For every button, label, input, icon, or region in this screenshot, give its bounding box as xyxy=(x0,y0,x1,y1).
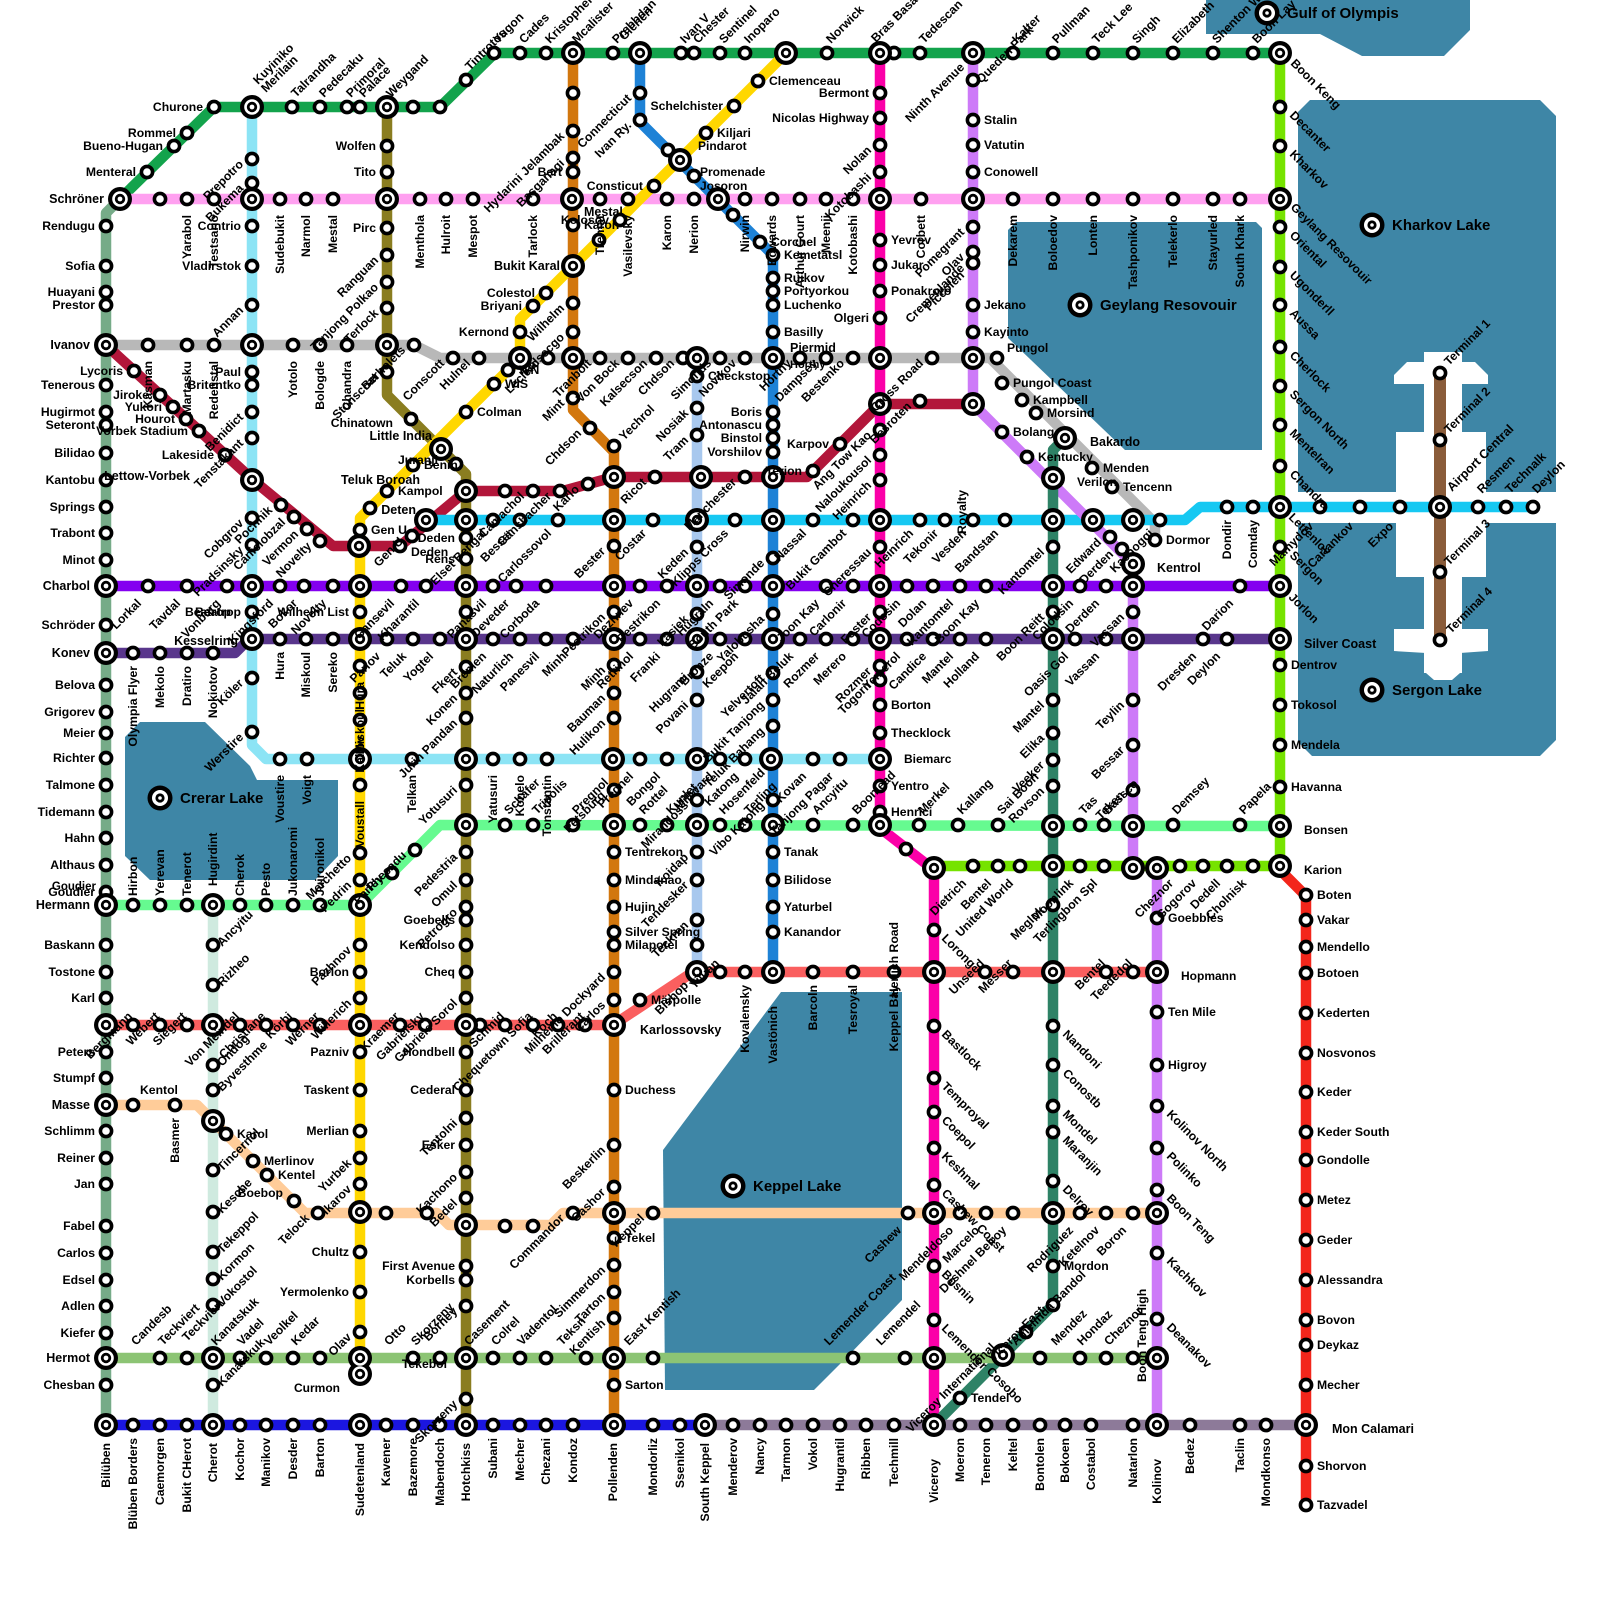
svg-text:Crerar Lake: Crerar Lake xyxy=(180,790,263,807)
svg-text:Nirwin: Nirwin xyxy=(738,215,752,252)
svg-text:Vorshilov: Vorshilov xyxy=(707,445,762,459)
svg-text:Huayani: Huayani xyxy=(48,285,95,299)
svg-text:Nicolas Highway: Nicolas Highway xyxy=(772,111,869,125)
svg-text:Miskoul: Miskoul xyxy=(299,652,313,697)
svg-text:Pungol: Pungol xyxy=(1007,341,1048,355)
svg-text:Richter: Richter xyxy=(53,751,95,765)
svg-text:Tito: Tito xyxy=(354,165,376,179)
svg-text:Mecher: Mecher xyxy=(1317,1378,1360,1392)
svg-text:Chandra: Chandra xyxy=(340,361,354,411)
svg-text:Gen U: Gen U xyxy=(371,523,407,537)
svg-text:Alessandra: Alessandra xyxy=(1317,1273,1383,1287)
svg-text:Pazniv: Pazniv xyxy=(310,1045,349,1059)
svg-text:Royalty: Royalty xyxy=(955,490,969,534)
svg-text:Menteral: Menteral xyxy=(86,165,136,179)
svg-text:Briyani: Briyani xyxy=(481,299,522,313)
svg-text:Goudier: Goudier xyxy=(52,881,97,893)
svg-text:Thecklock: Thecklock xyxy=(891,726,951,740)
svg-text:Teneron: Teneron xyxy=(979,1438,993,1485)
svg-text:Deden: Deden xyxy=(418,531,455,545)
svg-text:Kallov: Kallov xyxy=(353,736,367,773)
svg-text:Hugirmot: Hugirmot xyxy=(41,405,95,419)
svg-text:Chezani: Chezani xyxy=(539,1438,553,1485)
svg-text:Bakardo: Bakardo xyxy=(1090,435,1140,449)
svg-text:Hirbon: Hirbon xyxy=(126,857,140,896)
svg-text:Karol: Karol xyxy=(237,1127,268,1141)
svg-text:Sergon Lake: Sergon Lake xyxy=(1392,682,1482,699)
svg-text:Mekolo: Mekolo xyxy=(153,666,167,708)
svg-text:Bueno-Hugan: Bueno-Hugan xyxy=(83,139,163,153)
svg-text:Borlon: Borlon xyxy=(310,965,349,979)
svg-text:Bonsen: Bonsen xyxy=(1304,823,1348,837)
svg-text:Jukonaromi: Jukonaromi xyxy=(286,827,300,896)
svg-text:Kolosov: Kolosov xyxy=(561,213,609,227)
svg-text:Dondir: Dondir xyxy=(1220,520,1234,560)
svg-text:Stayurled: Stayurled xyxy=(1206,215,1220,271)
svg-text:Corchel: Corchel xyxy=(771,235,816,249)
svg-text:Vastönich: Vastönich xyxy=(766,1006,780,1064)
svg-text:Tarmon: Tarmon xyxy=(779,1438,793,1482)
svg-text:Deden: Deden xyxy=(411,545,448,559)
svg-text:Tazvadel: Tazvadel xyxy=(1317,1498,1368,1512)
svg-text:Keder: Keder xyxy=(1317,1085,1352,1099)
svg-text:Kentol: Kentol xyxy=(140,1083,178,1097)
svg-text:Tostone: Tostone xyxy=(49,965,96,979)
svg-text:Portyorkou: Portyorkou xyxy=(784,284,849,298)
svg-text:Minot: Minot xyxy=(63,553,96,567)
svg-text:Chesban: Chesban xyxy=(44,1378,95,1392)
svg-text:Mon Calamari: Mon Calamari xyxy=(1332,1422,1414,1436)
svg-text:Karion: Karion xyxy=(1304,863,1342,877)
svg-text:Teluk Boroah: Teluk Boroah xyxy=(341,473,420,487)
svg-text:Higroy: Higroy xyxy=(1168,1058,1207,1072)
svg-text:Moeron: Moeron xyxy=(953,1438,967,1482)
svg-text:Kendolso: Kendolso xyxy=(399,938,455,952)
svg-text:Cherot: Cherot xyxy=(206,1443,220,1482)
svg-text:Yotolo: Yotolo xyxy=(286,361,300,398)
svg-text:Borton: Borton xyxy=(891,698,931,712)
svg-text:Ruikov: Ruikov xyxy=(784,271,825,285)
svg-text:Jekano: Jekano xyxy=(984,298,1026,312)
svg-text:Sudebukit: Sudebukit xyxy=(273,215,287,274)
svg-text:Geylang Resovouir: Geylang Resovouir xyxy=(1100,297,1237,314)
svg-text:Vatutin: Vatutin xyxy=(984,138,1025,152)
svg-text:Chultz: Chultz xyxy=(312,1245,349,1259)
svg-text:Schelchister: Schelchister xyxy=(651,99,724,113)
svg-text:Schröner: Schröner xyxy=(49,192,104,206)
svg-text:Baskann: Baskann xyxy=(44,938,95,952)
svg-text:Biemarc: Biemarc xyxy=(904,752,952,766)
svg-text:Vorbek Stadium: Vorbek Stadium xyxy=(96,424,188,438)
svg-text:Vokol: Vokol xyxy=(806,1438,820,1470)
svg-text:Rendugu: Rendugu xyxy=(42,219,95,233)
svg-text:Hugrantil: Hugrantil xyxy=(833,1438,847,1492)
svg-text:Bilüben: Bilüben xyxy=(99,1443,113,1488)
svg-text:Kampbell: Kampbell xyxy=(1033,393,1088,407)
svg-text:Edsel: Edsel xyxy=(62,1273,95,1287)
svg-text:Yaturbel: Yaturbel xyxy=(784,900,832,914)
svg-text:Bukit CHerot: Bukit CHerot xyxy=(180,1438,194,1512)
svg-text:Mendello: Mendello xyxy=(1317,940,1370,954)
svg-text:Voigt: Voigt xyxy=(300,775,314,805)
svg-text:Tesroyal: Tesroyal xyxy=(846,985,860,1034)
svg-text:Checkstop: Checkstop xyxy=(708,369,770,383)
svg-text:Bilidose: Bilidose xyxy=(784,873,832,887)
svg-text:Keder South: Keder South xyxy=(1317,1125,1389,1139)
svg-text:Kharkov Lake: Kharkov Lake xyxy=(1392,217,1490,234)
svg-text:Prestor: Prestor xyxy=(52,298,95,312)
svg-text:Hura: Hura xyxy=(273,652,287,680)
svg-text:Goebells: Goebells xyxy=(404,913,456,927)
svg-text:Bert: Bert xyxy=(538,165,562,179)
svg-text:Esker: Esker xyxy=(422,1138,455,1152)
svg-text:Silver Coast: Silver Coast xyxy=(1304,637,1377,651)
svg-text:Tenerot: Tenerot xyxy=(180,852,194,896)
svg-text:Redenstal: Redenstal xyxy=(207,361,221,419)
svg-text:Barton: Barton xyxy=(313,1438,327,1477)
svg-text:Masse: Masse xyxy=(52,1098,90,1112)
svg-text:Hermot: Hermot xyxy=(46,1351,91,1365)
svg-text:Bermont: Bermont xyxy=(819,86,869,100)
svg-text:Belova: Belova xyxy=(55,678,95,692)
svg-text:Kavener: Kavener xyxy=(379,1438,393,1486)
svg-text:Hugirdint: Hugirdint xyxy=(206,833,220,886)
svg-text:Duchess: Duchess xyxy=(625,1083,676,1097)
svg-text:Keltel: Keltel xyxy=(1006,1438,1020,1471)
svg-text:Mondorliz: Mondorliz xyxy=(646,1438,660,1496)
svg-text:Kolinov: Kolinov xyxy=(1150,1459,1164,1504)
svg-text:Benin: Benin xyxy=(424,458,458,472)
svg-text:Blüben Borders: Blüben Borders xyxy=(126,1438,140,1530)
svg-text:Caemorgen: Caemorgen xyxy=(153,1438,167,1505)
svg-text:Vladirstok: Vladirstok xyxy=(182,259,241,273)
svg-text:Fabel: Fabel xyxy=(63,1219,95,1233)
svg-text:Luchenko: Luchenko xyxy=(784,298,842,312)
svg-text:Nosvonos: Nosvonos xyxy=(1317,1046,1376,1060)
svg-text:Tekebol: Tekebol xyxy=(402,1357,447,1371)
svg-text:Mestal: Mestal xyxy=(326,215,340,253)
svg-text:Pungol Coast: Pungol Coast xyxy=(1013,376,1092,390)
svg-text:Pindarot: Pindarot xyxy=(698,139,747,153)
svg-text:Contrio: Contrio xyxy=(198,219,241,233)
svg-text:Binstol: Binstol xyxy=(721,431,762,445)
svg-text:Botoen: Botoen xyxy=(1317,966,1359,980)
svg-text:Kederten: Kederten xyxy=(1317,1006,1370,1020)
svg-text:Kentrol: Kentrol xyxy=(1157,561,1201,575)
svg-text:Juironikol: Juironikol xyxy=(313,838,327,896)
svg-text:Olympia Flyer: Olympia Flyer xyxy=(126,666,140,747)
svg-text:Tashponikov: Tashponikov xyxy=(1126,215,1140,289)
svg-text:Techmill: Techmill xyxy=(887,1438,901,1487)
svg-text:Bilidao: Bilidao xyxy=(54,446,95,460)
svg-text:Merlian: Merlian xyxy=(306,1124,349,1138)
svg-text:Tokosol: Tokosol xyxy=(1291,698,1337,712)
svg-text:Dratiro: Dratiro xyxy=(180,666,194,706)
svg-text:Meier: Meier xyxy=(63,726,95,740)
svg-text:Tarlock: Tarlock xyxy=(526,215,540,258)
svg-text:Karlossovsky: Karlossovsky xyxy=(640,1023,721,1037)
svg-text:Antonascu: Antonascu xyxy=(699,418,762,432)
svg-text:Geder: Geder xyxy=(1317,1233,1352,1247)
svg-text:Karpov: Karpov xyxy=(787,437,829,451)
svg-text:Narmol: Narmol xyxy=(299,215,313,257)
svg-text:Shorvon: Shorvon xyxy=(1317,1459,1366,1473)
svg-text:Vasilevsky: Vasilevsky xyxy=(621,215,635,277)
svg-text:Kotobashi: Kotobashi xyxy=(846,215,860,275)
svg-text:Kernond: Kernond xyxy=(459,325,509,339)
svg-text:Colestol: Colestol xyxy=(487,286,535,300)
svg-text:Manikov: Manikov xyxy=(259,1438,273,1487)
svg-text:Boris: Boris xyxy=(731,405,762,419)
svg-text:South Khark: South Khark xyxy=(1233,215,1247,288)
svg-text:Olgeri: Olgeri xyxy=(834,311,869,325)
svg-text:Nokiotov: Nokiotov xyxy=(206,666,220,718)
svg-text:Stumpf: Stumpf xyxy=(53,1071,96,1085)
svg-text:Consticut: Consticut xyxy=(587,179,643,193)
svg-text:Seteront: Seteront xyxy=(46,418,95,432)
svg-text:Yarabol: Yarabol xyxy=(180,215,194,259)
svg-text:Sarton: Sarton xyxy=(625,1378,664,1392)
svg-text:Desder: Desder xyxy=(286,1438,300,1480)
svg-text:Mondkonso: Mondkonso xyxy=(1259,1438,1273,1506)
svg-text:Cederal: Cederal xyxy=(410,1083,455,1097)
svg-text:Bovon: Bovon xyxy=(1317,1313,1355,1327)
svg-text:Costabol: Costabol xyxy=(1084,1438,1098,1490)
svg-text:Carlos: Carlos xyxy=(57,1246,95,1260)
svg-text:Hura: Hura xyxy=(353,682,367,710)
svg-text:Yevrov: Yevrov xyxy=(891,233,931,247)
svg-text:Sofia: Sofia xyxy=(65,259,95,273)
svg-text:Telekerlo: Telekerlo xyxy=(1166,215,1180,268)
svg-text:Hahn: Hahn xyxy=(65,831,95,845)
svg-text:Bontolen: Bontolen xyxy=(1033,1438,1047,1491)
svg-text:Nancy: Nancy xyxy=(753,1438,767,1475)
svg-text:Boten: Boten xyxy=(1317,888,1352,902)
svg-text:Hotchkiss: Hotchkiss xyxy=(459,1443,473,1501)
svg-text:Taskent: Taskent xyxy=(304,1083,349,1097)
svg-text:Dormor: Dormor xyxy=(1166,533,1210,547)
svg-text:Ssenikol: Ssenikol xyxy=(673,1438,687,1488)
svg-text:Gondolle: Gondolle xyxy=(1317,1153,1370,1167)
svg-text:Kochor: Kochor xyxy=(233,1438,247,1481)
svg-text:Charbol: Charbol xyxy=(43,579,90,593)
svg-text:Horthy: Horthy xyxy=(790,359,826,371)
svg-text:Kayinto: Kayinto xyxy=(984,325,1029,339)
svg-text:Lettow-Vorbek: Lettow-Vorbek xyxy=(104,469,190,483)
svg-text:Deten: Deten xyxy=(381,503,416,517)
svg-text:Schlimm: Schlimm xyxy=(44,1124,95,1138)
svg-text:Tendel: Tendel xyxy=(971,1391,1009,1405)
svg-text:Stalin: Stalin xyxy=(984,113,1017,127)
svg-text:Kiljari: Kiljari xyxy=(717,126,751,140)
svg-text:Wolfen: Wolfen xyxy=(336,139,376,153)
svg-text:Lycoris: Lycoris xyxy=(80,364,123,378)
svg-text:Kentel: Kentel xyxy=(278,1168,315,1182)
svg-text:Josoron: Josoron xyxy=(700,179,747,193)
svg-text:Dekarem: Dekarem xyxy=(1006,215,1020,267)
svg-text:Hermann: Hermann xyxy=(36,898,90,912)
svg-text:Sereko: Sereko xyxy=(326,652,340,693)
svg-text:Reiner: Reiner xyxy=(57,1151,95,1165)
svg-text:Menthola: Menthola xyxy=(413,215,427,269)
svg-text:Hulroit: Hulroit xyxy=(439,215,453,254)
svg-text:Little India: Little India xyxy=(370,429,434,443)
svg-text:Talmone: Talmone xyxy=(46,778,95,792)
svg-text:Karon: Karon xyxy=(660,215,674,250)
svg-text:Althaus: Althaus xyxy=(50,858,95,872)
svg-text:Tencenn: Tencenn xyxy=(1123,480,1172,494)
svg-text:Mespot: Mespot xyxy=(466,215,480,258)
svg-text:Tanak: Tanak xyxy=(784,845,819,859)
svg-text:Tenerous: Tenerous xyxy=(41,378,95,392)
svg-text:Bedez: Bedez xyxy=(1183,1438,1197,1474)
svg-text:Morsind: Morsind xyxy=(1047,406,1094,420)
svg-text:Curmon: Curmon xyxy=(294,1381,340,1395)
svg-text:Terion: Terion xyxy=(766,464,802,478)
svg-text:Boon Teng High: Boon Teng High xyxy=(1135,1289,1149,1382)
svg-text:Schröder: Schröder xyxy=(41,618,95,632)
svg-text:Pesto: Pesto xyxy=(259,863,273,896)
svg-text:Metez: Metez xyxy=(1317,1193,1351,1207)
svg-text:Vakar: Vakar xyxy=(1317,913,1350,927)
svg-text:Subani: Subani xyxy=(486,1438,500,1479)
svg-text:Cherok: Cherok xyxy=(233,854,247,896)
svg-text:Bokoen: Bokoen xyxy=(1058,1438,1072,1483)
svg-text:Kemetatsl: Kemetatsl xyxy=(784,248,842,262)
svg-text:Deykaz: Deykaz xyxy=(1317,1338,1359,1352)
svg-text:Yatusuri: Yatusuri xyxy=(486,775,500,823)
svg-text:Telkan: Telkan xyxy=(405,775,419,813)
svg-text:Menderov: Menderov xyxy=(726,1438,740,1496)
svg-text:Kanandor: Kanandor xyxy=(784,925,841,939)
svg-text:Cheq: Cheq xyxy=(425,965,455,979)
svg-text:Viceroy: Viceroy xyxy=(927,1459,941,1503)
svg-text:Hopmann: Hopmann xyxy=(1181,969,1236,983)
svg-text:Basmer: Basmer xyxy=(168,1118,182,1163)
svg-text:Grigorev: Grigorev xyxy=(44,705,95,719)
svg-text:Keppel Bay: Keppel Bay xyxy=(887,985,901,1052)
svg-text:Springs: Springs xyxy=(50,500,96,514)
svg-text:Martasku: Martasku xyxy=(180,361,194,415)
svg-text:Bazemore: Bazemore xyxy=(406,1438,420,1496)
svg-text:Ivanov: Ivanov xyxy=(50,338,90,352)
svg-text:Kovalensky: Kovalensky xyxy=(738,985,752,1053)
svg-text:Dentrov: Dentrov xyxy=(1291,658,1337,672)
svg-text:Conowell: Conowell xyxy=(984,165,1038,179)
svg-text:Boebop: Boebop xyxy=(238,1186,283,1200)
svg-text:Bologde: Bologde xyxy=(313,361,327,410)
svg-text:Rommel: Rommel xyxy=(128,126,176,140)
svg-text:Gulf of Olympis: Gulf of Olympis xyxy=(1287,5,1399,22)
svg-text:First Avenue: First Avenue xyxy=(382,1259,455,1273)
svg-text:Yentro: Yentro xyxy=(891,779,929,793)
svg-text:Ten Mile: Ten Mile xyxy=(1168,1005,1216,1019)
svg-text:Sudetenland: Sudetenland xyxy=(353,1443,367,1516)
svg-text:Boloedov: Boloedov xyxy=(1046,215,1060,271)
svg-text:Märpolle: Märpolle xyxy=(651,993,701,1007)
svg-text:Bolang: Bolang xyxy=(1013,425,1054,439)
svg-text:Keppel Lake: Keppel Lake xyxy=(753,1178,841,1195)
svg-text:Kantobu: Kantobu xyxy=(46,473,95,487)
svg-text:Lonten: Lonten xyxy=(1086,215,1100,256)
svg-text:Hondbell: Hondbell xyxy=(403,1045,455,1059)
svg-text:Karl: Karl xyxy=(71,991,95,1005)
svg-text:Voustire: Voustire xyxy=(273,775,287,823)
svg-text:Menden: Menden xyxy=(1103,461,1149,475)
svg-text:Yermolenko: Yermolenko xyxy=(280,1285,349,1299)
svg-text:Jan: Jan xyxy=(74,1177,95,1191)
svg-text:Bukit Karal: Bukit Karal xyxy=(494,259,560,273)
svg-text:Mecher: Mecher xyxy=(513,1438,527,1481)
svg-text:Nerion: Nerion xyxy=(687,215,701,254)
svg-text:Piermid: Piermid xyxy=(790,341,836,355)
svg-text:Kiefer: Kiefer xyxy=(60,1326,95,1340)
svg-text:Tidemann: Tidemann xyxy=(38,805,95,819)
svg-text:Verilon: Verilon xyxy=(1077,475,1117,489)
svg-text:Voustall: Voustall xyxy=(353,801,367,848)
svg-text:Pollenden: Pollenden xyxy=(606,1443,620,1501)
svg-text:Promenade: Promenade xyxy=(700,165,766,179)
svg-text:Ribben: Ribben xyxy=(859,1438,873,1479)
svg-text:Mendela: Mendela xyxy=(1291,738,1340,752)
svg-text:Barcoln: Barcoln xyxy=(806,985,820,1030)
svg-text:Kondoz: Kondoz xyxy=(566,1438,580,1483)
svg-text:Konev: Konev xyxy=(52,646,90,660)
svg-text:Taclin: Taclin xyxy=(1233,1438,1247,1472)
svg-text:Colman: Colman xyxy=(477,405,522,419)
svg-text:Chinatown: Chinatown xyxy=(331,416,393,430)
svg-text:Basilly: Basilly xyxy=(784,325,824,339)
svg-text:Korbells: Korbells xyxy=(406,1273,455,1287)
svg-text:Churone: Churone xyxy=(153,100,203,114)
svg-text:Merlinov: Merlinov xyxy=(264,1154,314,1168)
svg-text:Kentucky: Kentucky xyxy=(1038,450,1093,464)
svg-text:Comday: Comday xyxy=(1246,520,1260,568)
svg-text:Pirc: Pirc xyxy=(353,221,376,235)
svg-text:Yerevan: Yerevan xyxy=(153,849,167,896)
svg-text:South Keppel: South Keppel xyxy=(698,1443,712,1522)
svg-text:Mabendoch: Mabendoch xyxy=(433,1438,447,1506)
svg-text:Trabont: Trabont xyxy=(50,526,95,540)
svg-text:Adlen: Adlen xyxy=(61,1299,95,1313)
svg-text:Lakeside: Lakeside xyxy=(162,448,214,462)
svg-text:Havanna: Havanna xyxy=(1291,780,1342,794)
svg-text:Natarlon: Natarlon xyxy=(1126,1438,1140,1487)
